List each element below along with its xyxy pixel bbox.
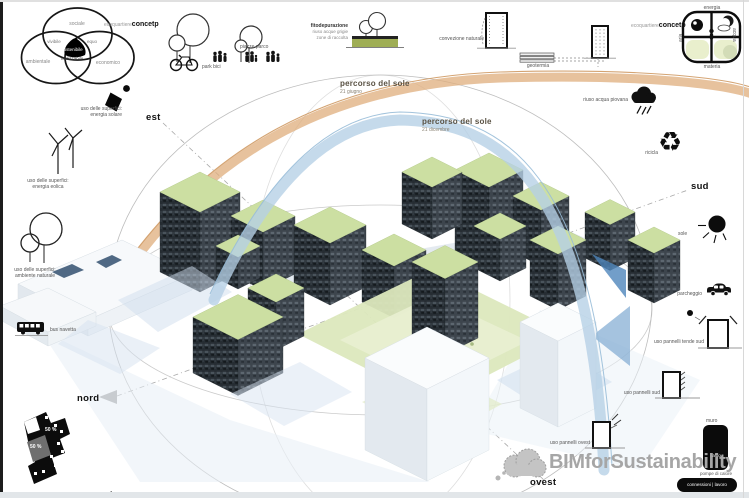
concept-prefix: ecoquartiere (104, 22, 132, 28)
phytodepuration-icon (346, 13, 404, 48)
plan-percent-gray: 50 % (30, 444, 41, 450)
sun-label: sole (678, 231, 687, 237)
phyto-label: fitodepurazione riuso acque grigie zone … (296, 23, 348, 41)
bus-label: bus navetta (50, 327, 76, 333)
person-icon (245, 52, 248, 62)
top-border (0, 0, 749, 2)
compass-est: est (146, 112, 161, 123)
compass-ovest: ovest (530, 477, 556, 488)
wind-surface-label: uso delle superfici: energia eolica (16, 178, 80, 191)
panels-tende-label: uso pannelli tende sud (650, 339, 704, 345)
bottom-strip (0, 492, 749, 498)
energy-pill-label: connessioni | lavoro (677, 482, 737, 487)
right-border (743, 0, 744, 498)
person-icon (250, 51, 254, 62)
panels-sud-label: uso pannelli sud (616, 390, 660, 396)
panels-ovest-label: uso pannelli ovest (540, 440, 590, 446)
venn-label-ambientale: ambientale (16, 59, 60, 65)
sun-path-summer-label: percorso del sole 21 giugno (340, 79, 410, 95)
convection-label: convezione naturale (430, 36, 484, 42)
venn-label-equo: equo (76, 39, 108, 44)
plan-percent-black: 50 % (45, 427, 56, 433)
watermark-text: BIMforSustainability (549, 451, 736, 474)
compass-nord: nord (77, 393, 99, 404)
building-block (365, 327, 489, 481)
solar-surface-label: uso delle superfici: energia solare (58, 106, 122, 119)
person-icon (277, 53, 280, 62)
building-block (474, 213, 526, 281)
watermark-logo (496, 449, 547, 481)
sun-icon (698, 216, 726, 243)
venn-label-economico: economico (86, 60, 130, 66)
person-icon (271, 51, 275, 62)
quadrant-label-aria: aria (678, 34, 684, 42)
quadrant-label-energia: energia (697, 5, 727, 11)
bicycle-icon (171, 55, 198, 71)
compass-sud: sud (691, 181, 709, 192)
wind-turbines-icon (49, 128, 82, 174)
person-icon (218, 51, 222, 62)
recycle-label: ricicla (632, 150, 658, 156)
park-label: piazze parco (240, 44, 268, 50)
rain-reuse-label: riuso acqua piovana (566, 97, 628, 103)
geothermal-icon (520, 26, 616, 67)
person-icon (266, 52, 269, 62)
venn-label-sociale: sociale (56, 21, 98, 27)
recycle-icon: ♻ (658, 129, 682, 156)
rain-cloud-icon (632, 87, 657, 115)
building-block (294, 207, 366, 305)
car-icon (707, 284, 731, 296)
concept-word: concetp (132, 21, 159, 28)
person-icon (223, 53, 226, 62)
energy-box-top-label: muro (706, 418, 717, 424)
person-icon (213, 52, 216, 62)
concept-scene (0, 0, 749, 498)
venn-label-sostenibile: sostenibile (51, 47, 93, 52)
people-icons (213, 51, 279, 62)
building-block (402, 157, 462, 239)
geothermal-label: geotermia (520, 63, 556, 69)
building-block (585, 200, 635, 271)
nature-surface-label: uso delle superfici: ambiente naturale (4, 267, 66, 280)
person-icon (255, 55, 257, 62)
left-border (0, 0, 3, 498)
natural-convection-icon (477, 13, 516, 48)
parking-label: parcheggio (666, 291, 702, 297)
quadrant-label-acqua: acqua (731, 28, 737, 42)
venn-label-vivibile: vivibile (38, 39, 70, 44)
sun-path-winter-label: percorso del sole 21 dicembre (422, 117, 492, 133)
concept-title-top-left: ecoquartiereconcetp (104, 12, 159, 31)
concept-title-top-right: ecoquartiereconcetp (631, 13, 686, 32)
quadrant-label-materia: materia (697, 64, 727, 70)
bike-label: park bici (202, 64, 221, 70)
tree-icon (21, 213, 62, 263)
eco-district-concept-board: ecoquartiereconcetp ecoquartiereconcetp … (0, 0, 749, 498)
